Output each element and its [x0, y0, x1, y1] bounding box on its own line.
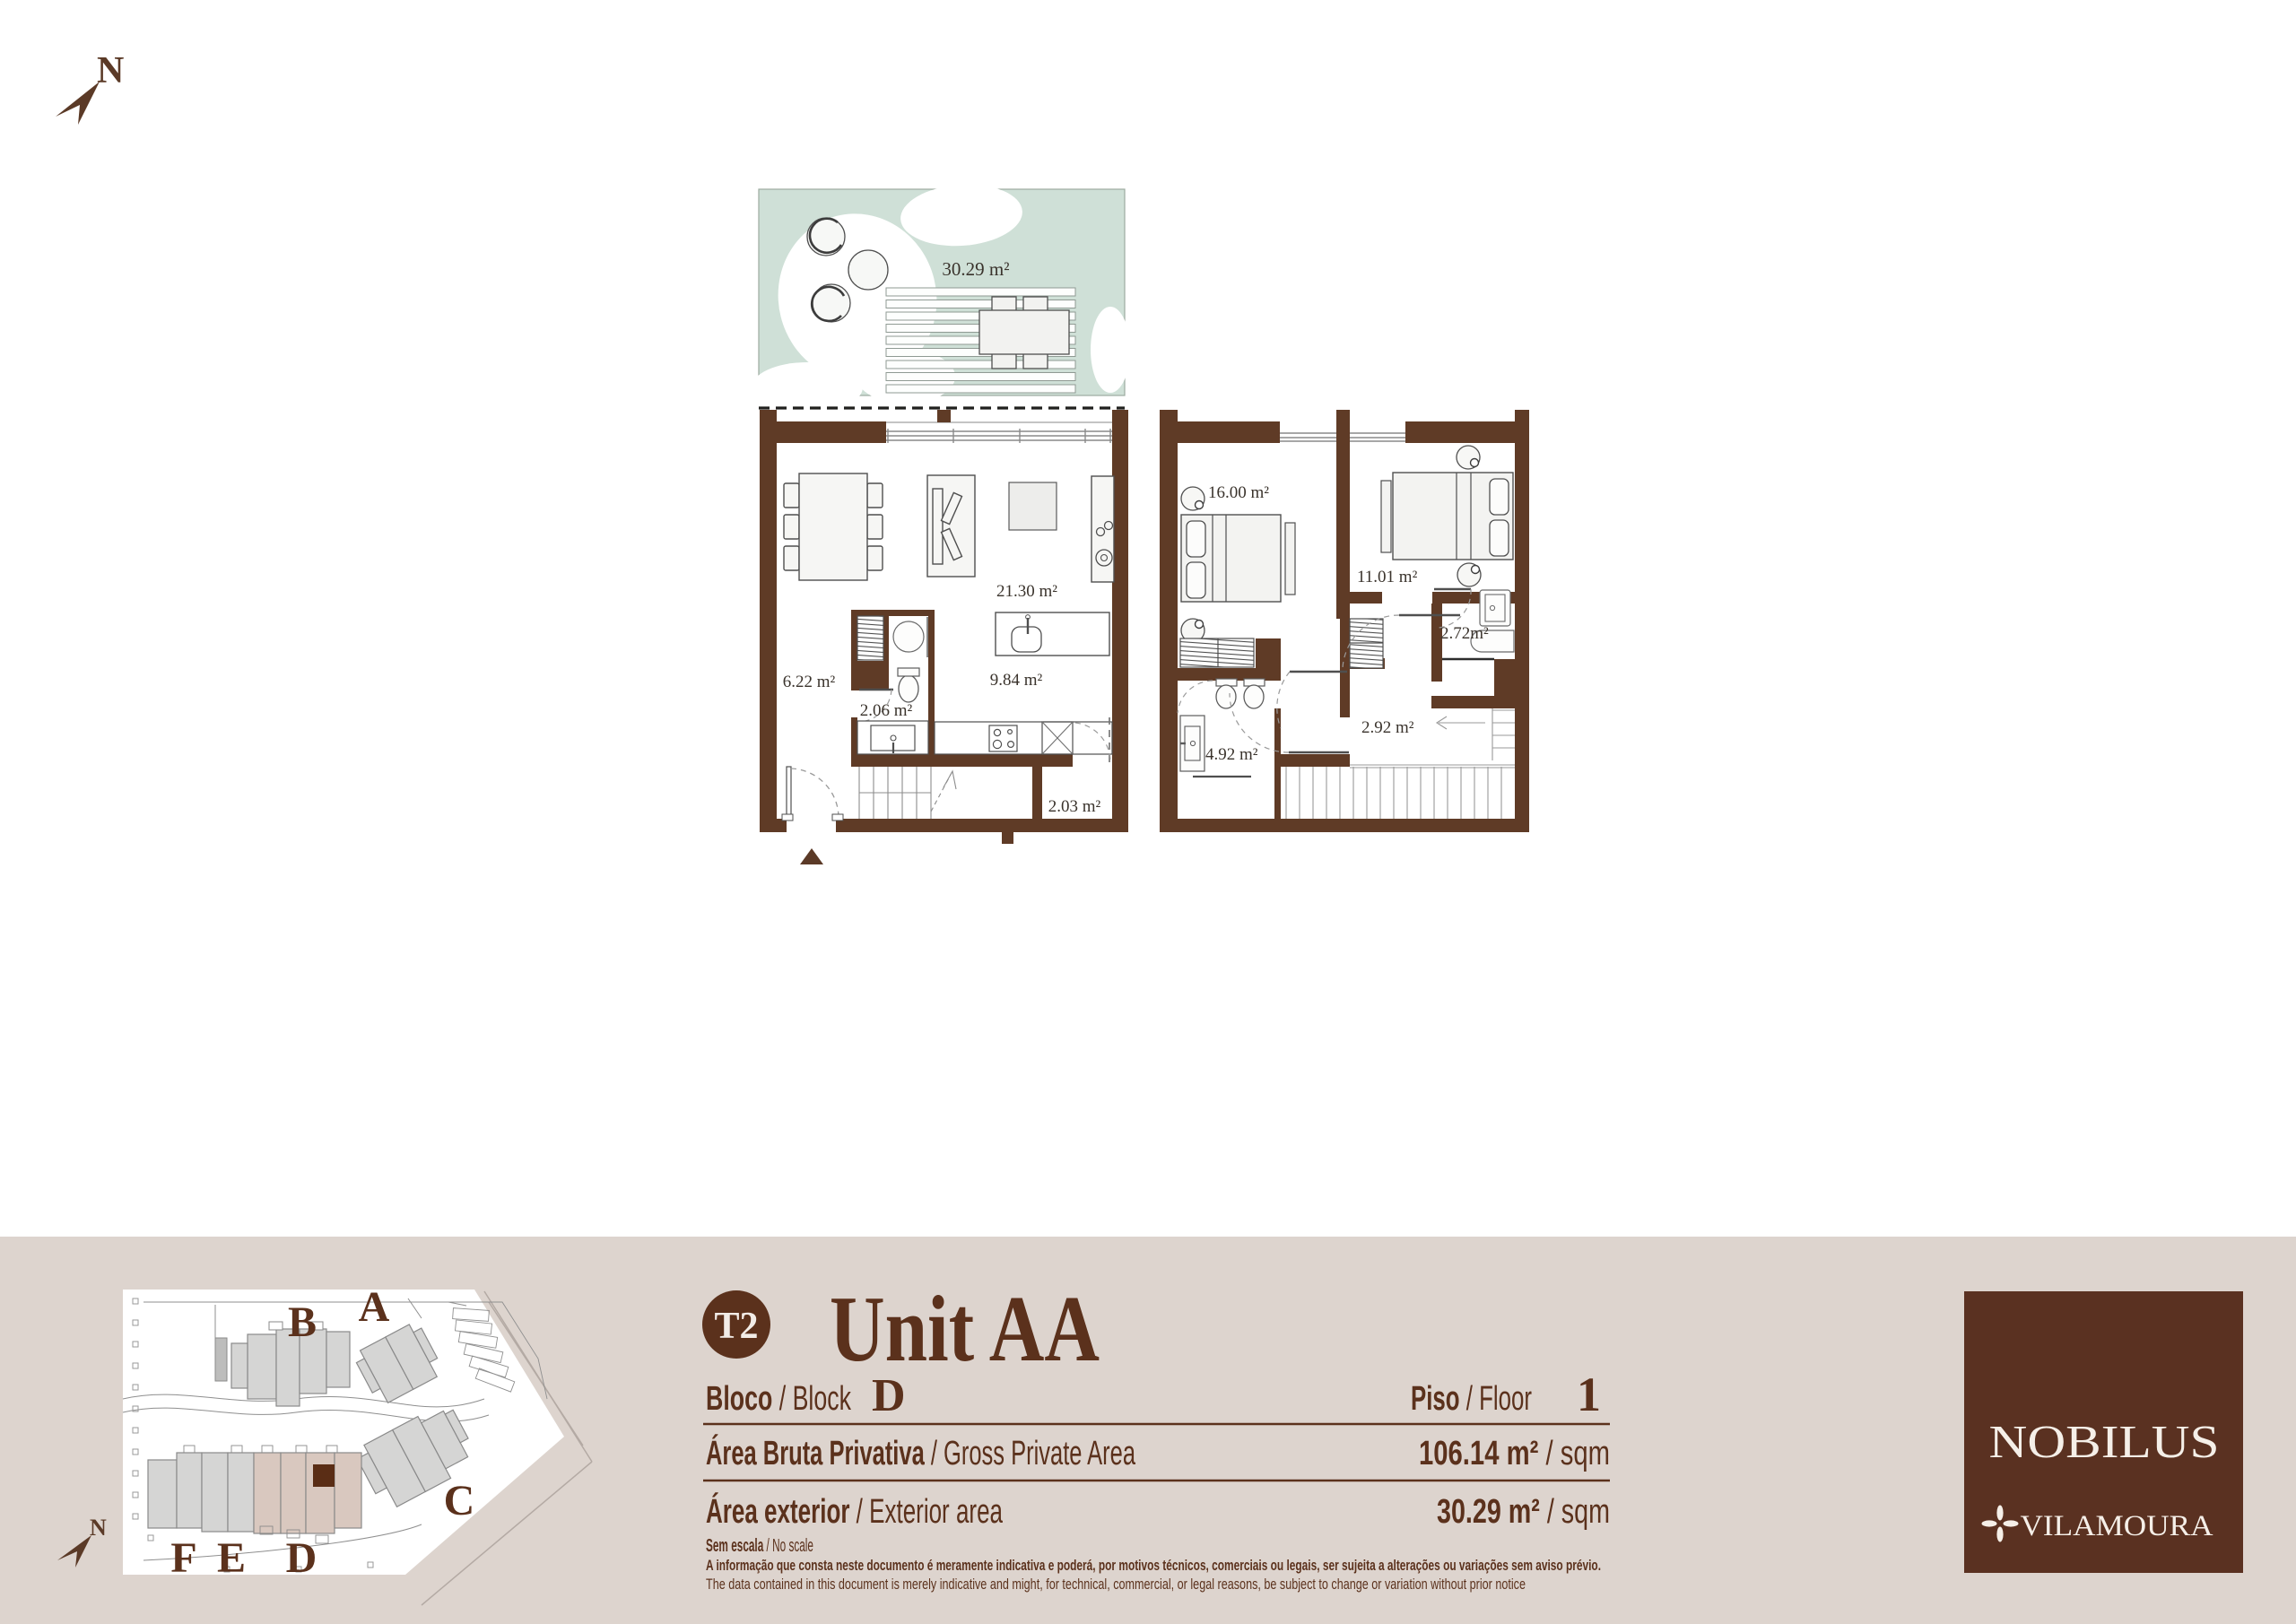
svg-text:106.14 m² / sqm: 106.14 m² / sqm [1419, 1435, 1610, 1472]
svg-text:Área exterior / Exterior area: Área exterior / Exterior area [706, 1491, 1004, 1531]
svg-text:Área Bruta Privativa / Gross P: Área Bruta Privativa / Gross Private Are… [706, 1433, 1136, 1472]
svg-text:21.30 m²: 21.30 m² [996, 582, 1057, 601]
svg-text:NOBILUS: NOBILUS [1989, 1417, 2220, 1468]
svg-text:T2: T2 [714, 1306, 758, 1347]
svg-text:E: E [217, 1534, 246, 1582]
svg-text:6.22 m²: 6.22 m² [783, 673, 836, 691]
svg-text:F: F [170, 1534, 196, 1582]
svg-text:2.06 m²: 2.06 m² [860, 701, 913, 720]
svg-text:C: C [444, 1477, 475, 1524]
svg-text:A: A [359, 1283, 390, 1331]
svg-text:Piso / Floor: Piso / Floor [1411, 1380, 1532, 1418]
svg-text:Bloco / Block: Bloco / Block [706, 1380, 852, 1418]
svg-text:16.00 m²: 16.00 m² [1208, 483, 1269, 502]
svg-text:30.29 m²: 30.29 m² [942, 258, 1009, 280]
svg-text:1: 1 [1577, 1368, 1601, 1421]
svg-text:2.72m²: 2.72m² [1440, 624, 1489, 643]
svg-text:Sem escala / No scale: Sem escala / No scale [706, 1536, 813, 1556]
svg-text:VILAMOURA: VILAMOURA [2021, 1510, 2213, 1542]
svg-text:N: N [97, 50, 124, 91]
svg-text:D: D [286, 1534, 317, 1582]
svg-text:A informação que consta neste: A informação que consta neste documento … [706, 1557, 1601, 1574]
svg-text:The data contained in this doc: The data contained in this document is m… [706, 1576, 1526, 1593]
svg-text:2.92 m²: 2.92 m² [1361, 718, 1414, 737]
svg-text:30.29 m² / sqm: 30.29 m² / sqm [1437, 1493, 1610, 1531]
svg-text:B: B [288, 1298, 317, 1346]
svg-text:11.01 m²: 11.01 m² [1357, 568, 1418, 586]
svg-text:N: N [90, 1515, 107, 1541]
svg-text:9.84 m²: 9.84 m² [990, 671, 1043, 690]
svg-text:Unit AA: Unit AA [830, 1276, 1100, 1381]
svg-text:2.03 m²: 2.03 m² [1048, 797, 1101, 816]
svg-text:D: D [872, 1370, 906, 1421]
svg-text:4.92 m²: 4.92 m² [1205, 745, 1258, 764]
